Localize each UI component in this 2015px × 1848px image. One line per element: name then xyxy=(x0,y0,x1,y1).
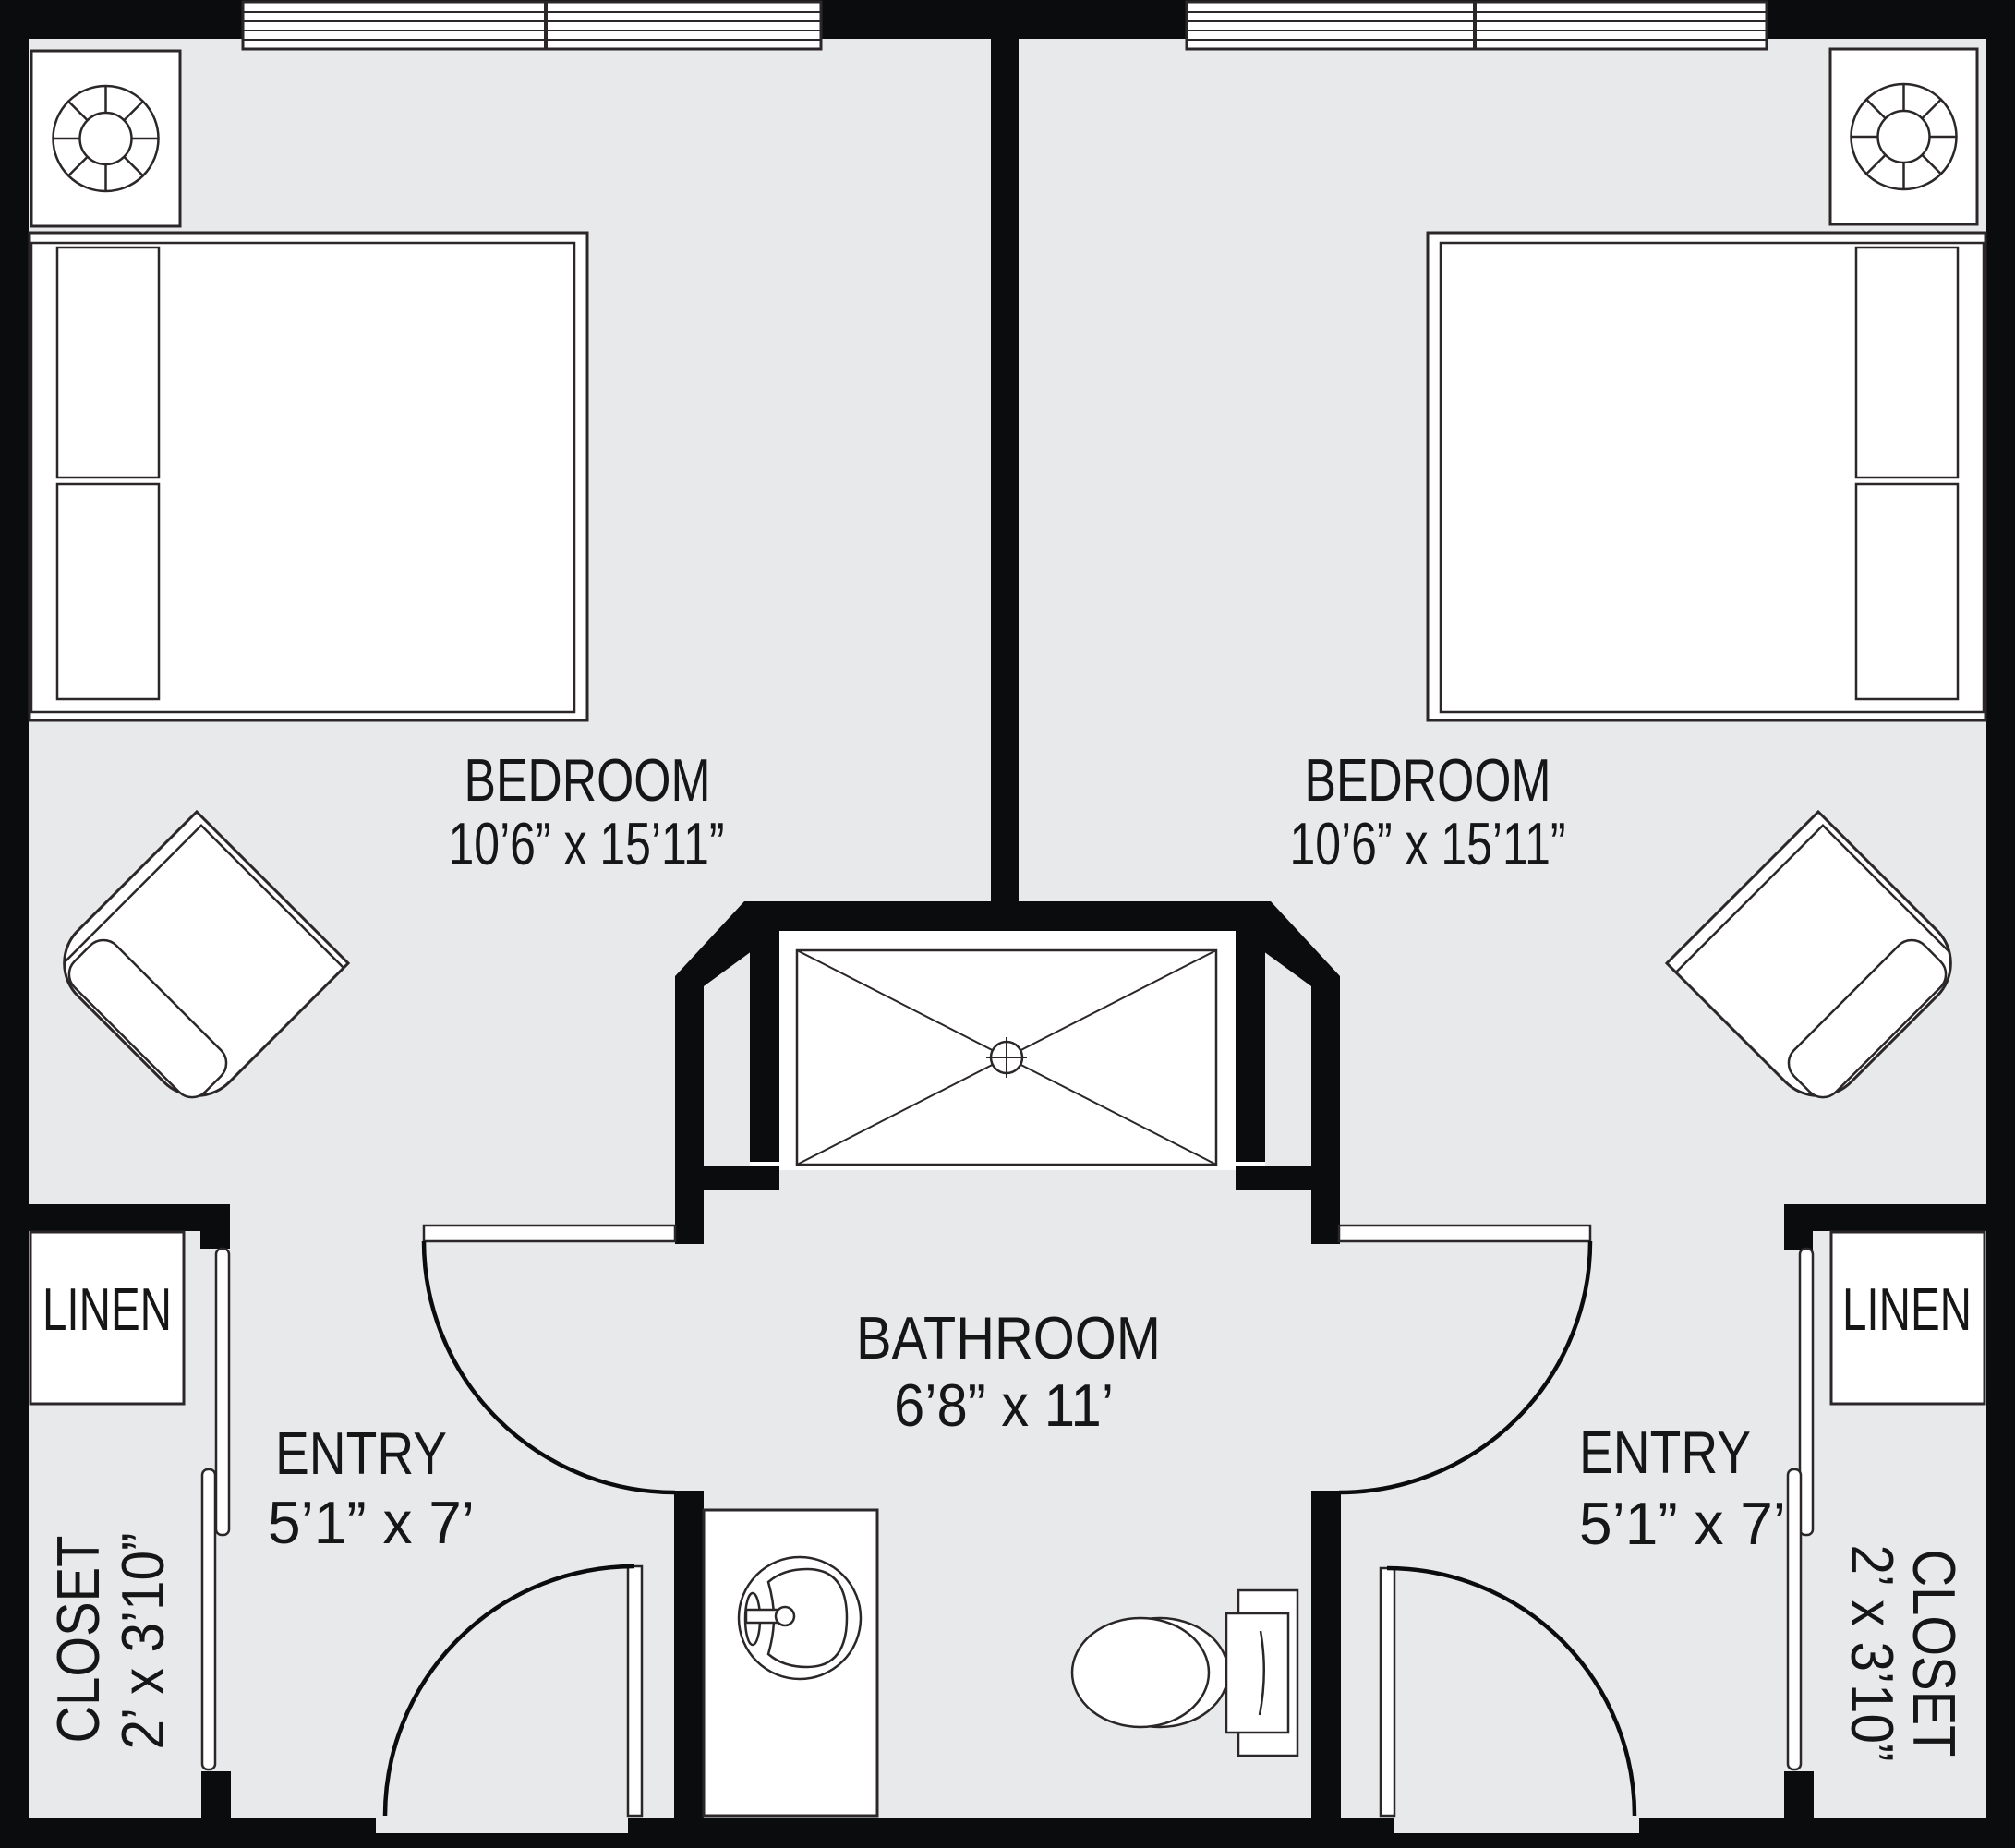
svg-text:BATHROOM: BATHROOM xyxy=(856,1304,1161,1371)
svg-text:2’ x 3’10”: 2’ x 3’10” xyxy=(109,1533,176,1750)
svg-text:5’1” x 7’: 5’1” x 7’ xyxy=(268,1489,475,1556)
svg-text:2’ x 3’10”: 2’ x 3’10” xyxy=(1839,1545,1906,1762)
svg-text:ENTRY: ENTRY xyxy=(275,1419,447,1487)
svg-text:BEDROOM: BEDROOM xyxy=(465,746,711,814)
svg-text:6’8” x 11’: 6’8” x 11’ xyxy=(894,1371,1114,1439)
svg-text:5’1” x 7’: 5’1” x 7’ xyxy=(1579,1490,1786,1557)
svg-text:CLOSET: CLOSET xyxy=(44,1536,112,1744)
svg-text:LINEN: LINEN xyxy=(1842,1275,1972,1343)
svg-text:LINEN: LINEN xyxy=(42,1275,172,1343)
svg-text:10’6” x 15’11”: 10’6” x 15’11” xyxy=(449,810,725,877)
svg-text:BEDROOM: BEDROOM xyxy=(1305,746,1551,814)
svg-text:ENTRY: ENTRY xyxy=(1579,1419,1751,1486)
svg-text:CLOSET: CLOSET xyxy=(1900,1550,1968,1757)
svg-text:10’6” x 15’11”: 10’6” x 15’11” xyxy=(1290,810,1566,877)
